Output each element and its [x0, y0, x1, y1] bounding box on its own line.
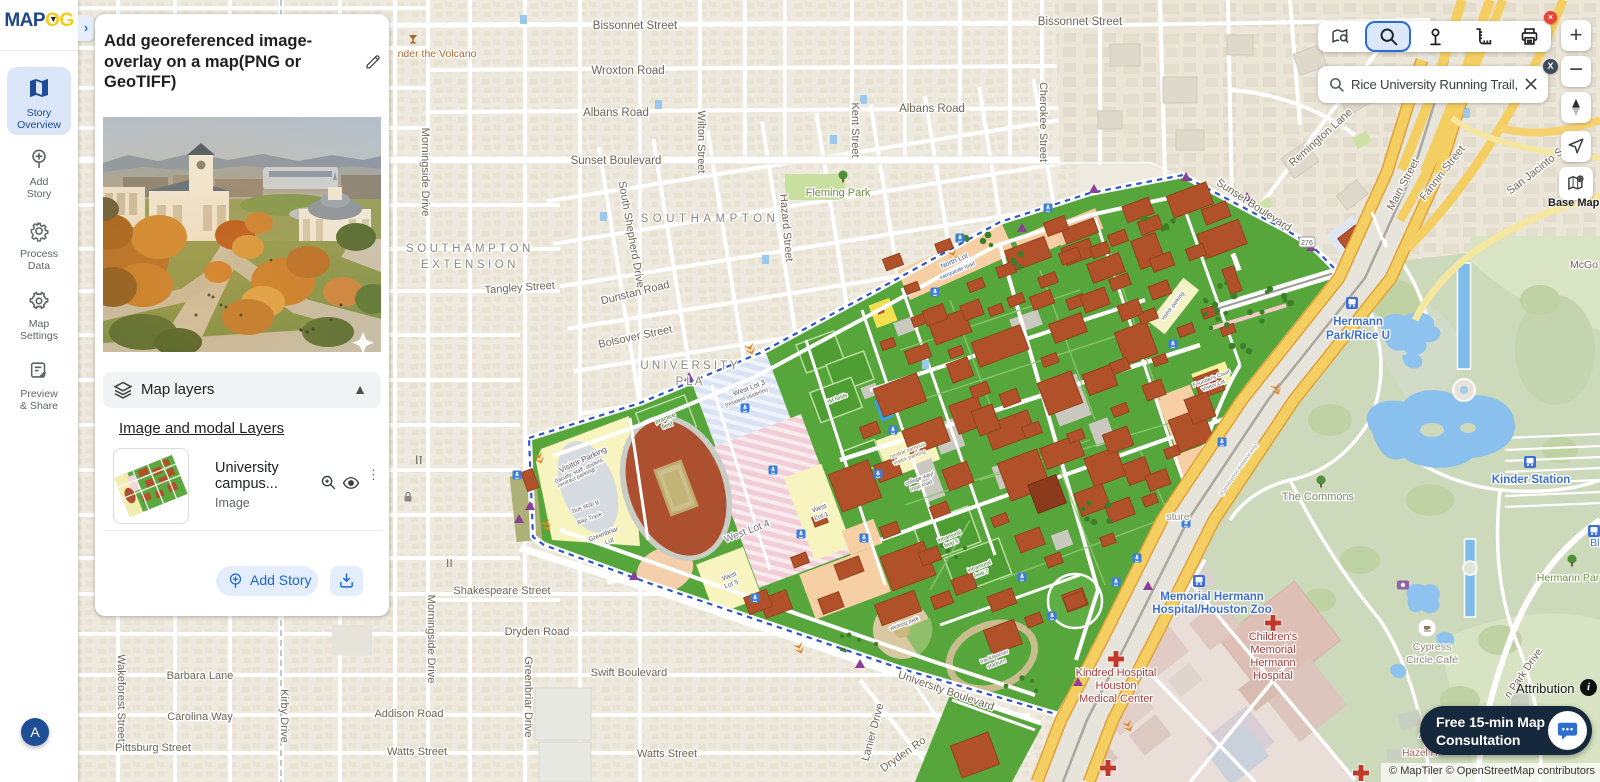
svg-text:Wroxton Road: Wroxton Road	[591, 65, 664, 77]
svg-text:Greenbriar Drive: Greenbriar Drive	[522, 656, 534, 737]
svg-text:Bli: Bli	[1590, 537, 1600, 549]
svg-text:Hospital/Houston Zoo: Hospital/Houston Zoo	[1152, 604, 1271, 616]
svg-text:Bissonnet Street: Bissonnet Street	[1038, 16, 1123, 28]
svg-text:Fleming Park: Fleming Park	[806, 187, 871, 199]
svg-text:Pittsburg Street: Pittsburg Street	[115, 742, 191, 754]
svg-text:Barbara Lane: Barbara Lane	[167, 670, 234, 682]
svg-text:The Commons: The Commons	[1282, 491, 1355, 503]
svg-text:Morningside Drive: Morningside Drive	[425, 595, 437, 684]
svg-text:Memorial Hermann: Memorial Hermann	[1160, 591, 1264, 603]
svg-text:nder the Volcano: nder the Volcano	[398, 48, 477, 60]
svg-text:SOUTHAMPTON: SOUTHAMPTON	[406, 243, 534, 255]
svg-text:Shakespeare Street: Shakespeare Street	[453, 585, 550, 597]
svg-text:Kent Street: Kent Street	[849, 102, 861, 157]
svg-text:Hermann: Hermann	[1250, 657, 1295, 669]
svg-text:McGo: McGo	[1570, 259, 1598, 271]
svg-text:Cherokee Street: Cherokee Street	[1037, 82, 1049, 162]
svg-text:Swift Boulevard: Swift Boulevard	[591, 667, 667, 679]
svg-text:EXTENSION: EXTENSION	[421, 259, 519, 271]
svg-text:Park/Rice U: Park/Rice U	[1326, 330, 1390, 342]
svg-text:Morningside Drive: Morningside Drive	[419, 128, 431, 217]
svg-text:Cypress: Cypress	[1413, 641, 1452, 653]
svg-text:Children's: Children's	[1249, 631, 1298, 643]
svg-text:Watts Street: Watts Street	[387, 746, 447, 758]
svg-text:Kinder Station: Kinder Station	[1492, 474, 1571, 486]
svg-text:Wakeforest Street: Wakeforest Street	[115, 654, 127, 742]
svg-text:Memorial: Memorial	[1250, 644, 1295, 656]
svg-text:Hospital: Hospital	[1253, 670, 1293, 682]
svg-text:Albans Road: Albans Road	[583, 107, 649, 119]
svg-text:Carolina Way: Carolina Way	[167, 711, 233, 723]
svg-text:Albans Road: Albans Road	[899, 103, 965, 115]
svg-text:Watts Street: Watts Street	[637, 748, 697, 760]
svg-text:P L A: P L A	[676, 376, 703, 388]
svg-text:SOUTHAMPTON: SOUTHAMPTON	[641, 213, 780, 225]
svg-text:Sunset Boulevard: Sunset Boulevard	[571, 155, 662, 167]
svg-text:U N I V E R S I T Y: U N I V E R S I T Y	[640, 360, 737, 372]
svg-text:Addison Road: Addison Road	[374, 708, 443, 720]
svg-text:Hermann Par: Hermann Par	[1537, 572, 1600, 584]
svg-text:sture: sture	[1166, 511, 1190, 523]
svg-text:Medical Center: Medical Center	[1079, 693, 1153, 705]
svg-text:Kindred Hospital: Kindred Hospital	[1076, 667, 1157, 679]
svg-text:Circle Café: Circle Café	[1406, 654, 1458, 666]
svg-text:Dryden Road: Dryden Road	[505, 626, 570, 638]
svg-text:Bissonnet Street: Bissonnet Street	[593, 20, 678, 32]
svg-text:Wilton Street: Wilton Street	[695, 111, 707, 174]
svg-text:Kirby Drive: Kirby Drive	[278, 689, 290, 743]
svg-text:Houston: Houston	[1096, 680, 1137, 692]
svg-text:276: 276	[1301, 240, 1313, 247]
svg-text:Hermann: Hermann	[1333, 316, 1383, 328]
